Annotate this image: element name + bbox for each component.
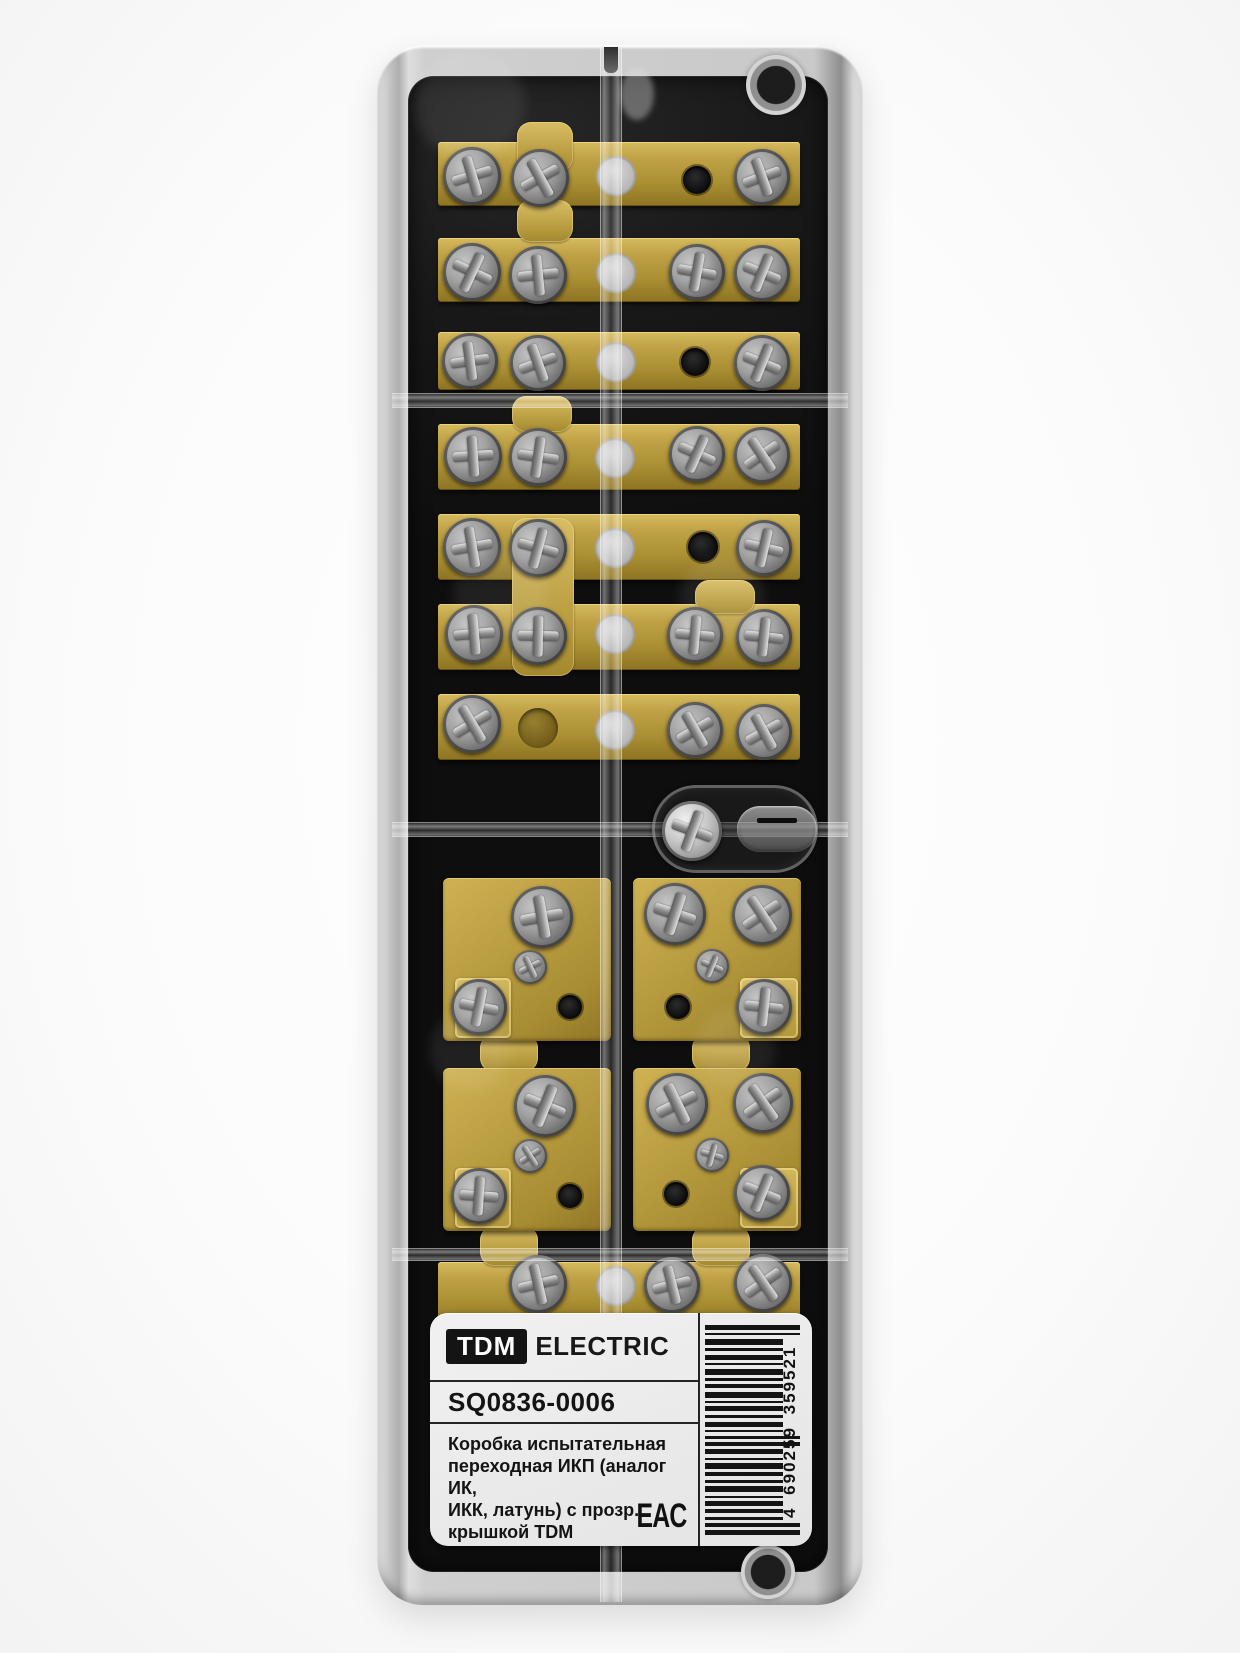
terminal-screw	[667, 702, 723, 758]
barcode-bar	[705, 1430, 783, 1432]
terminal-screw	[734, 1165, 790, 1221]
terminal-screw-small	[513, 1139, 547, 1173]
terminal-screw	[734, 245, 790, 301]
barcode-bar	[705, 1392, 783, 1398]
barcode-bar	[705, 1449, 783, 1454]
barcode-bar	[705, 1401, 783, 1403]
terminal-screw	[510, 335, 566, 391]
mounting-hole-top	[746, 55, 806, 115]
screw-slot	[531, 254, 545, 295]
terminal-screw	[514, 1075, 576, 1137]
wire-hole	[681, 348, 709, 376]
seal-screw-recess	[652, 785, 818, 873]
barcode-bar	[705, 1348, 783, 1351]
terminal-screw	[644, 883, 706, 945]
terminal-screw	[442, 333, 498, 389]
barcode-bar	[705, 1384, 783, 1388]
product-label: TDM ELECTRIC SQ0836-0006 Коробка испытат…	[430, 1313, 812, 1546]
terminal-screw-small	[695, 949, 729, 983]
seal-slot	[757, 818, 797, 823]
barcode-bar	[705, 1406, 783, 1411]
barcode-bar	[705, 1509, 783, 1513]
terminal-screw	[509, 428, 567, 486]
wire-hole	[664, 1182, 688, 1206]
barcode-bar	[705, 1415, 783, 1418]
description-line: переходная ИКП (аналог ИК,	[448, 1455, 692, 1499]
product-photo: TDM ELECTRIC SQ0836-0006 Коробка испытат…	[0, 0, 1240, 1653]
terminal-screw	[669, 426, 725, 482]
wire-hole	[558, 995, 582, 1019]
terminal-screw	[669, 244, 725, 300]
barcode-bar	[705, 1517, 783, 1520]
barcode-bar	[705, 1339, 783, 1345]
barcode-area: 4 690259 359521	[700, 1313, 812, 1546]
terminal-screw	[509, 1255, 567, 1313]
terminal-screw	[511, 886, 573, 948]
mounting-hole-bottom	[741, 1545, 795, 1599]
terminal-screw	[646, 1073, 708, 1135]
description-line: Коробка испытательная	[448, 1433, 692, 1455]
cover-rib-lower	[392, 1248, 848, 1261]
barcode-bar	[705, 1422, 783, 1427]
reflection	[680, 556, 764, 640]
reflection	[415, 50, 525, 160]
wire-hole	[683, 166, 711, 194]
wire-hole	[666, 995, 690, 1019]
barcode-bar	[705, 1458, 783, 1460]
cover-molding-blob	[620, 68, 654, 120]
wire-hole	[558, 1184, 582, 1208]
barcode-bar	[705, 1369, 783, 1375]
reflection	[454, 546, 546, 638]
barcode-bar	[705, 1355, 783, 1360]
reflection	[695, 1008, 775, 1088]
terminal-screw	[734, 149, 790, 205]
brand-logo: TDM ELECTRIC	[430, 1313, 698, 1382]
eac-mark: EAC	[636, 1496, 686, 1536]
brand-suffix: ELECTRIC	[535, 1331, 669, 1362]
terminal-screw	[443, 695, 501, 753]
terminal-screw	[734, 335, 790, 391]
screw-slot	[473, 1176, 485, 1216]
barcode-bar	[705, 1496, 783, 1498]
product-sku: SQ0836-0006	[430, 1382, 698, 1424]
barcode-bar	[705, 1480, 783, 1483]
terminal-screw	[644, 1257, 700, 1313]
label-text-area: TDM ELECTRIC SQ0836-0006 Коробка испытат…	[430, 1313, 700, 1546]
terminal-screw	[509, 246, 567, 304]
terminal-screw-small	[513, 950, 547, 984]
screw-slot	[757, 617, 771, 657]
barcode-bar	[705, 1363, 783, 1365]
seal-screw	[662, 801, 722, 861]
terminal-screw	[444, 427, 502, 485]
barcode-bar	[705, 1378, 783, 1381]
terminal-screw	[732, 885, 792, 945]
terminal-screw	[734, 1254, 792, 1312]
barcode-bar	[705, 1486, 783, 1492]
threaded-hole	[518, 708, 558, 748]
terminal-screw	[443, 243, 501, 301]
screw-slot	[467, 435, 480, 476]
cover-sprue-mark	[604, 47, 618, 73]
cover-rib-upper	[392, 393, 848, 408]
terminal-screw	[736, 704, 792, 760]
terminal-screw-small	[695, 1138, 729, 1172]
barcode-bar	[705, 1463, 783, 1469]
reflection	[430, 1010, 510, 1090]
terminal-screw	[451, 1168, 507, 1224]
terminal-screw	[511, 149, 569, 207]
tdm-logo: TDM	[446, 1329, 527, 1364]
barcode-bar	[705, 1501, 783, 1506]
barcode-bar	[705, 1472, 783, 1476]
seal-window	[737, 806, 817, 852]
barcode-digits: 4 690259 359521	[780, 1323, 804, 1541]
terminal-screw	[734, 427, 790, 483]
